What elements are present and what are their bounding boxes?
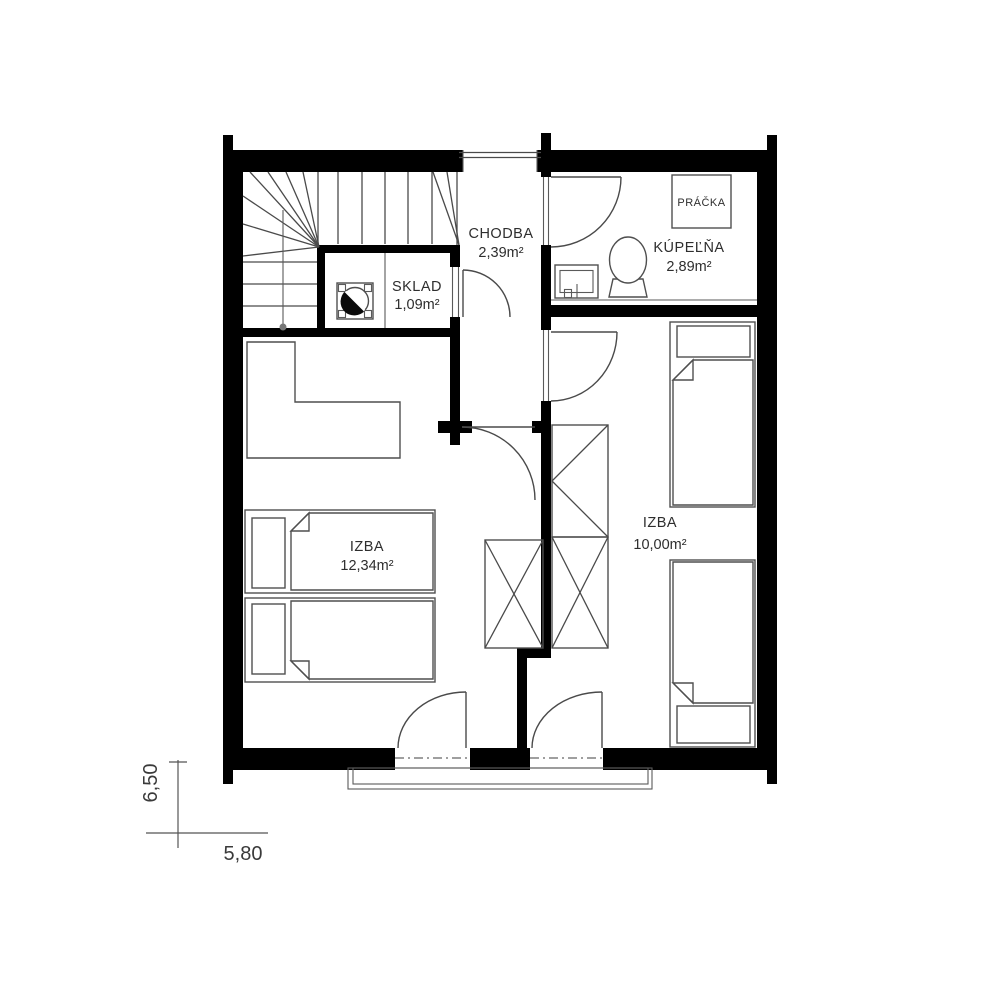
wall-bottom-right-segment [603,748,777,770]
room-label-kupelna: KÚPEĽŇA [653,239,724,256]
bed-left-2 [245,598,435,682]
room-label-izba-right: IZBA [643,515,677,531]
dim-width-label: 5,80 [224,843,263,865]
sklad-door-arc [463,270,510,317]
wall-bottom-mid-segment [470,748,530,770]
blanket [673,360,753,505]
wardrobe-right-bottom [552,537,608,648]
door-left-room [462,427,535,500]
balcony-door-left-arc [398,692,466,748]
sink-icon [555,265,598,298]
balcony-door-right [530,692,603,758]
room-area-sklad: 1,09m² [394,297,439,313]
bathroom-door-arc [551,177,621,247]
wall-chodba-right-mid [541,245,551,330]
dimension-lines: 6,50 5,80 [140,760,268,865]
wall-stub-top-right [767,135,777,150]
dim-height-label: 6,50 [140,764,162,803]
wall-under-stairs [243,328,460,337]
wall-sklad-door-upper [450,253,460,267]
bed-right-1 [670,322,755,507]
blanket-fold [673,683,693,703]
wall-bottom-left-segment [223,748,395,770]
bathroom-door [544,177,622,247]
wall-partition-lower [517,658,527,748]
pillow [677,706,750,743]
room-area-kupelna: 2,89m² [666,259,711,275]
washer-box: PRÁČKA [672,175,731,228]
wall-top-right-segment [537,150,777,172]
terrace-step [348,768,652,789]
room-area-izba-right: 10,00m² [633,537,686,553]
wall-top-left-segment [223,150,463,172]
room-area-chodba: 2,39m² [478,245,523,261]
pillow [252,604,285,674]
stair-walk-line-start [280,324,287,331]
pillow [252,518,285,588]
window-top [459,150,541,172]
door-right-room [544,330,618,401]
wall-stub-bottom-left [223,770,233,784]
wall-sklad-top [317,245,460,253]
wall-right [757,150,777,770]
blanket [673,562,753,703]
pillow [677,326,750,357]
floor-plan-canvas: SKLAD 1,09m² CHODBA 2,39m² [0,0,1000,1000]
toilet-icon [609,237,647,297]
boiler-icon [337,283,373,319]
hallway-chodba: CHODBA 2,39m² [459,150,617,500]
wall-partition-jog [517,648,551,658]
door-left-room-arc [462,427,535,500]
bed-right-2 [670,560,755,747]
balcony-door-right-arc [532,692,602,748]
wall-stub-top-left [223,135,233,150]
wall-left [223,150,243,770]
blanket [291,601,433,679]
blanket-fold [291,661,309,679]
floor-plan-drawing: SKLAD 1,09m² CHODBA 2,39m² [0,0,1000,1000]
wall-sklad-left [317,245,325,337]
room-area-izba-left: 12,34m² [340,558,393,574]
wall-stub-bottom-right [767,770,777,784]
bed-left-1 [245,510,435,593]
wall-chodba-right-upper [541,133,551,177]
wall-bathroom-bottom [551,305,757,317]
wardrobe-right-top [552,425,608,537]
room-right: IZBA 10,00m² [530,322,755,758]
washer-label: PRÁČKA [677,196,725,209]
room-label-sklad: SKLAD [392,279,442,295]
door-right-room-arc [551,332,617,401]
room-left: IZBA 12,34m² [245,342,543,758]
blanket-fold [673,360,693,380]
balcony-door-left [395,692,470,758]
room-sklad: SKLAD 1,09m² [337,253,510,328]
wardrobe-left-room [485,540,543,648]
blanket-fold [291,513,309,531]
desk-l-shaped [247,342,400,458]
room-label-chodba: CHODBA [468,226,533,242]
room-label-izba-left: IZBA [350,539,384,555]
room-bathroom: PRÁČKA KÚPEĽŇA 2,89m² [544,175,758,300]
